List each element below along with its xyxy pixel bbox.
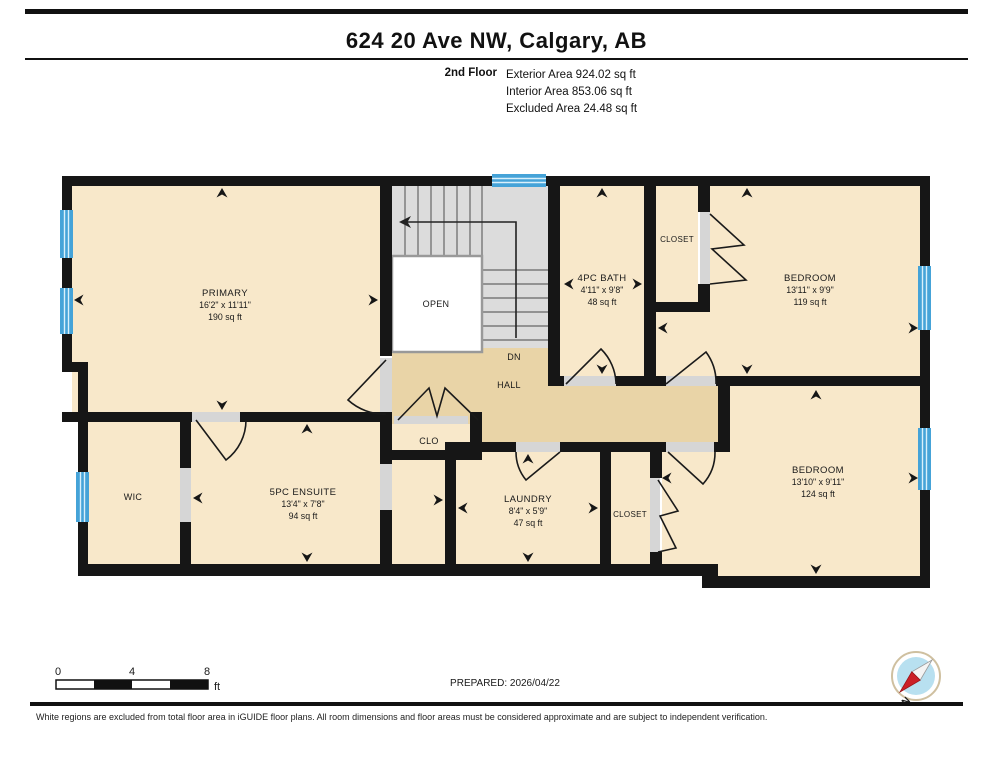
scale-tick-0: 0 bbox=[55, 666, 61, 678]
label-bath-name: 4PC BATH bbox=[578, 273, 627, 284]
label-ensuite-area: 94 sq ft bbox=[289, 511, 318, 521]
hall-right bbox=[548, 385, 730, 442]
label-laundry-area: 47 sq ft bbox=[514, 518, 543, 528]
room-ensuite-nook bbox=[392, 459, 445, 564]
label-bath-area: 48 sq ft bbox=[588, 297, 617, 307]
label-dn: DN bbox=[507, 352, 521, 362]
window-primary-upper bbox=[60, 210, 73, 258]
label-bedroom-bottom-name: BEDROOM bbox=[792, 465, 844, 476]
floorplan-page: 624 20 Ave NW, Calgary, AB 2nd Floor Ext… bbox=[0, 0, 993, 768]
label-primary-dims: 16'2" x 11'11" bbox=[199, 300, 251, 310]
label-bedroom-top-area: 119 sq ft bbox=[793, 297, 827, 307]
scale-tick-8: 8 bbox=[204, 666, 210, 678]
label-clo: CLO bbox=[419, 436, 438, 446]
label-bedroom-top-dims: 13'11" x 9'9" bbox=[786, 285, 834, 295]
label-ensuite-name: 5PC ENSUITE bbox=[270, 487, 337, 498]
scale-unit: ft bbox=[214, 681, 220, 693]
label-laundry-name: LAUNDRY bbox=[504, 494, 552, 505]
label-open: OPEN bbox=[423, 299, 450, 309]
label-bath-dims: 4'11" x 9'8" bbox=[581, 285, 624, 295]
label-bedroom-top-name: BEDROOM bbox=[784, 273, 836, 284]
label-laundry-dims: 8'4" x 5'9" bbox=[509, 506, 547, 516]
label-hall: HALL bbox=[497, 380, 521, 390]
room-closet-top bbox=[656, 185, 698, 306]
label-closet-top: CLOSET bbox=[660, 235, 694, 244]
disclaimer-text: White regions are excluded from total fl… bbox=[36, 712, 767, 722]
floorplan-drawing: PRIMARY 16'2" x 11'11" 190 sq ft OPEN DN… bbox=[0, 0, 993, 768]
label-ensuite-dims: 13'4" x 7'8" bbox=[281, 499, 324, 509]
label-bedroom-bottom-area: 124 sq ft bbox=[801, 489, 835, 499]
label-closet-bottom: CLOSET bbox=[613, 510, 647, 519]
window-primary-lower bbox=[60, 288, 73, 334]
room-bedroom-top-ext bbox=[656, 310, 710, 376]
label-wic: WIC bbox=[124, 492, 143, 502]
room-bedroom-bottom-ext bbox=[730, 386, 920, 452]
label-primary-area: 190 sq ft bbox=[208, 312, 242, 322]
window-bedroom-top bbox=[918, 266, 931, 330]
window-wic bbox=[76, 472, 89, 522]
label-bedroom-bottom-dims: 13'10" x 9'11" bbox=[792, 477, 845, 487]
bottom-border-bar bbox=[30, 702, 963, 706]
room-bedroom-bottom bbox=[662, 452, 920, 576]
prepared-date: PREPARED: 2026/04/22 bbox=[450, 678, 560, 689]
window-bedroom-bottom bbox=[918, 428, 931, 490]
room-closet-bottom bbox=[611, 452, 650, 564]
label-primary-name: PRIMARY bbox=[202, 288, 248, 299]
scale-bar: 0 4 8 ft bbox=[55, 666, 220, 693]
compass-icon: N bbox=[892, 652, 940, 708]
scale-tick-4: 4 bbox=[129, 666, 135, 678]
window-stair-top bbox=[492, 174, 546, 187]
